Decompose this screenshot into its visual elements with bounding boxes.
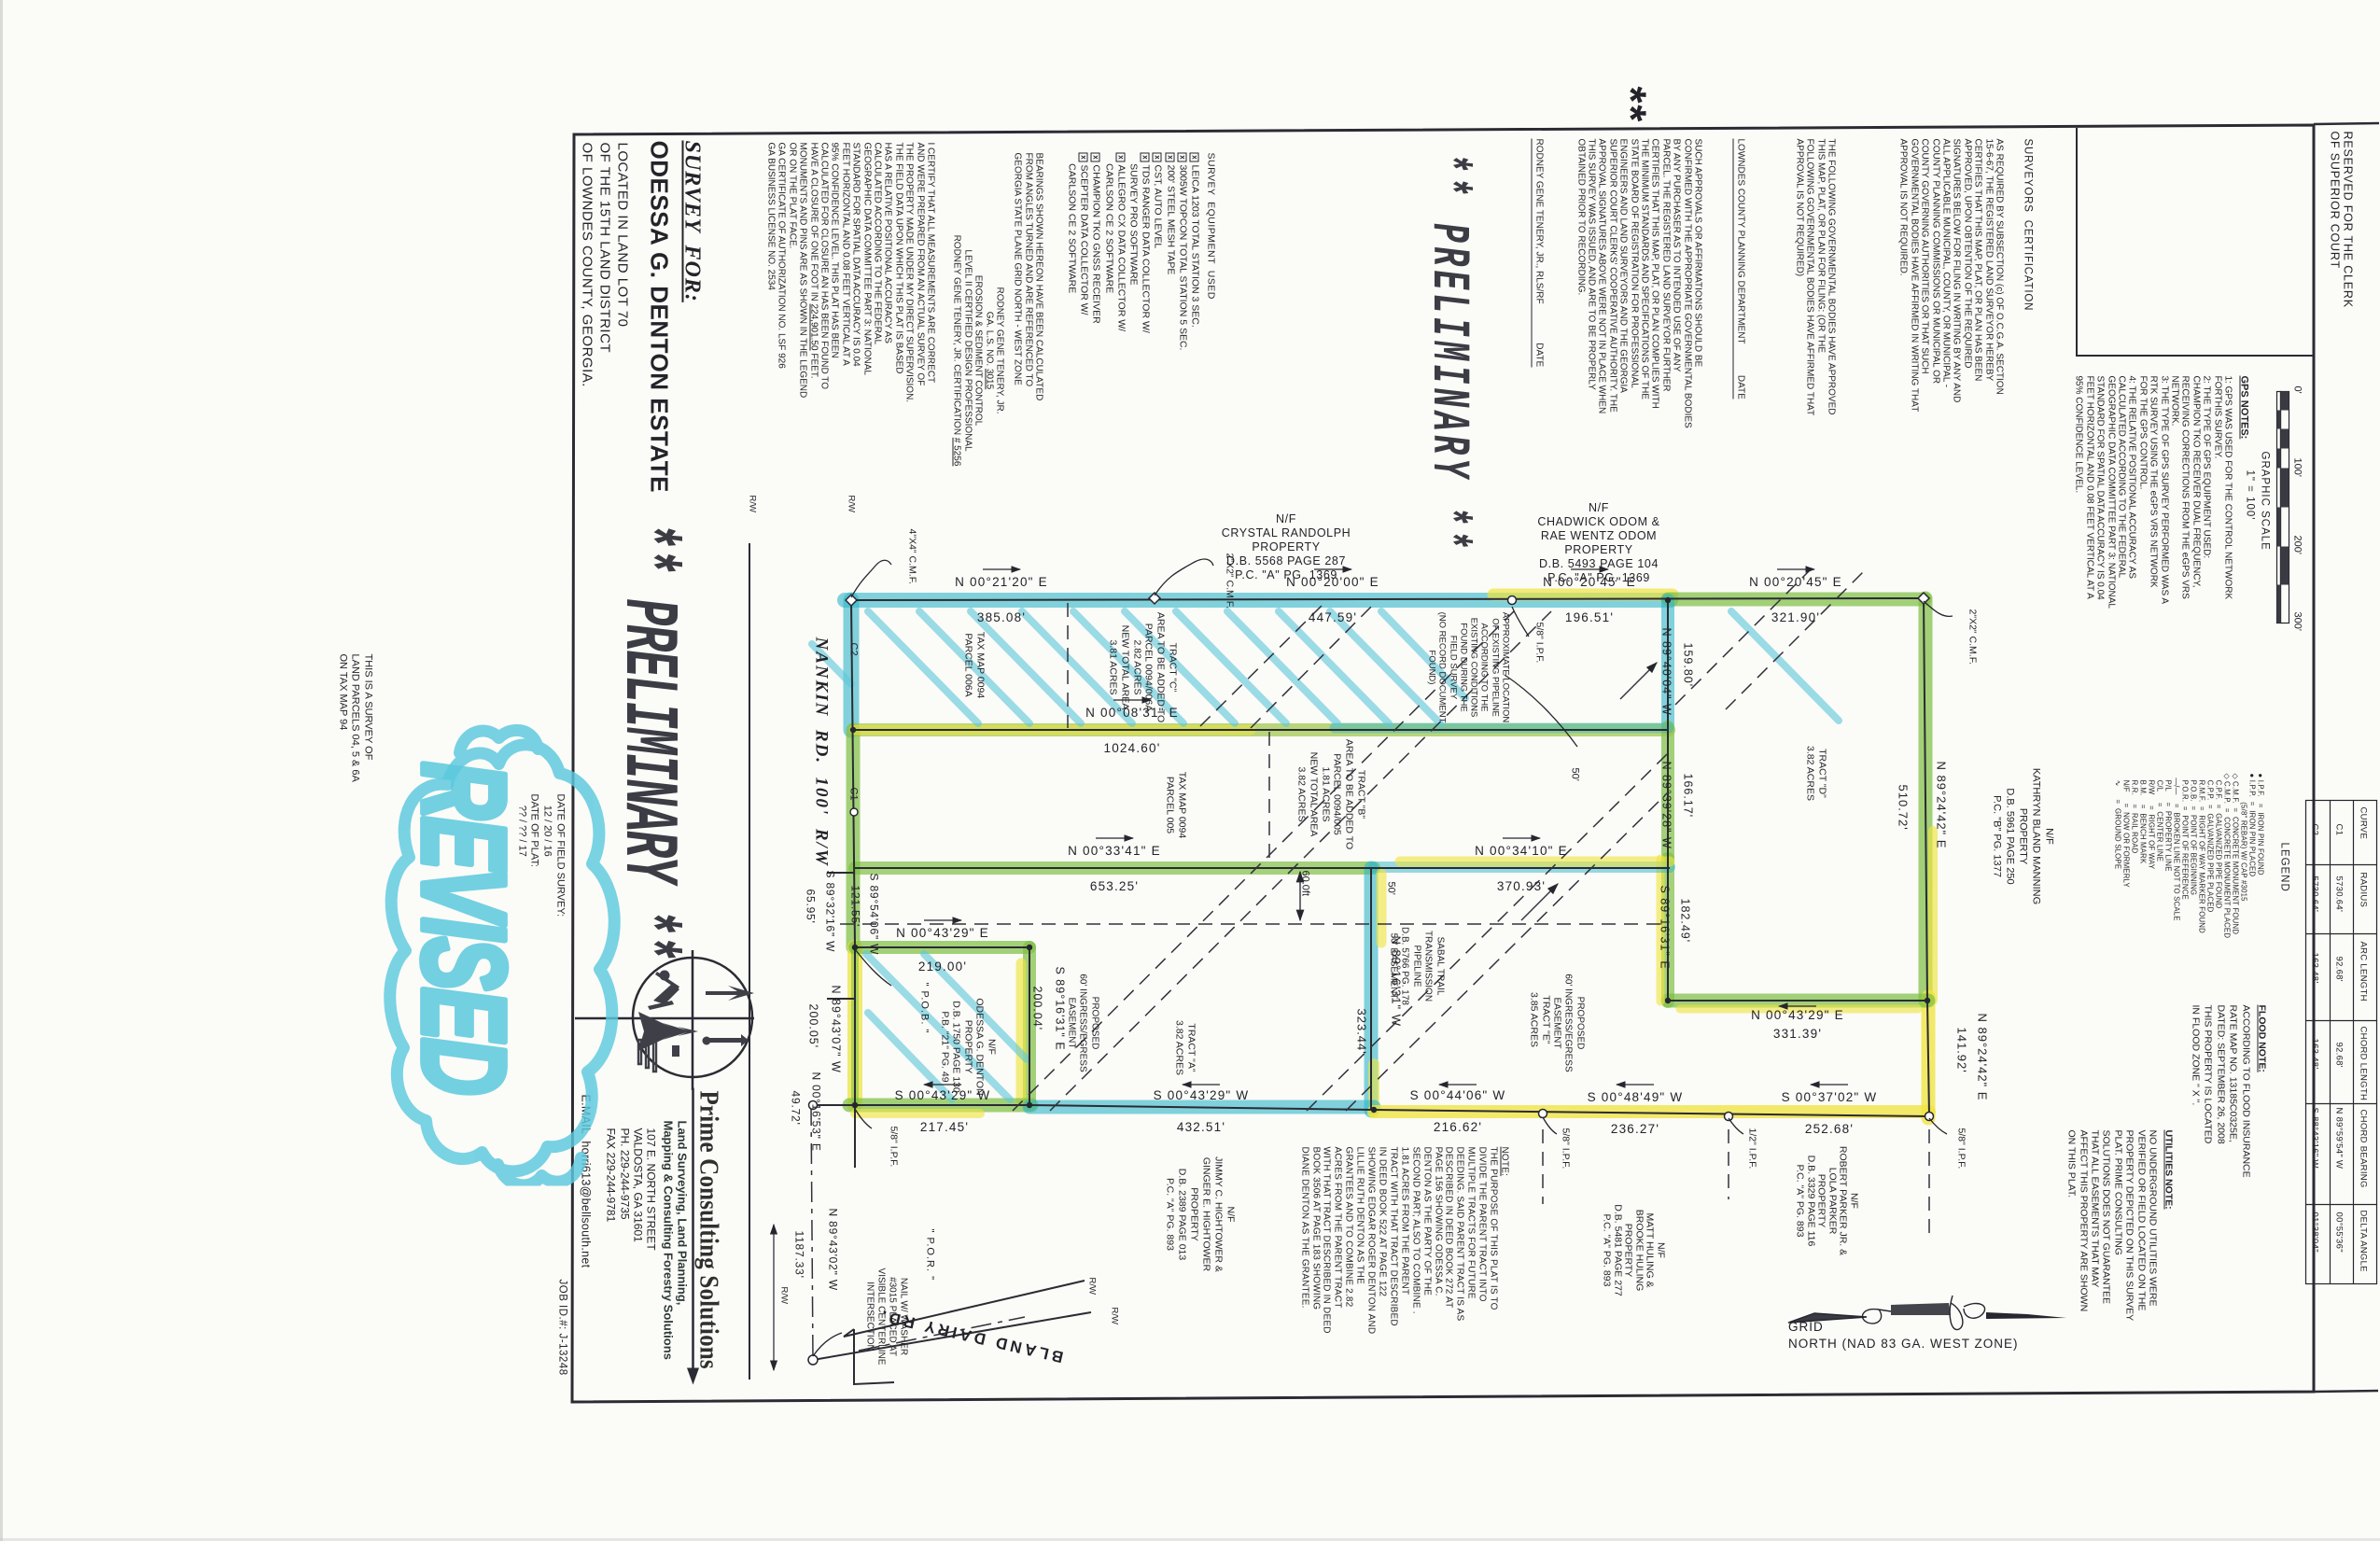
svg-text:01°38'04": 01°38'04" <box>2309 1212 2319 1252</box>
svg-text:300': 300' <box>2291 611 2303 630</box>
svg-text:163.48': 163.48' <box>2309 1038 2319 1069</box>
svg-text:ARC LENGTH: ARC LENGTH <box>2358 941 2368 1001</box>
svg-text:CHORD BEARING: CHORD BEARING <box>2358 1109 2368 1187</box>
svg-text:C1: C1 <box>2333 823 2344 835</box>
svg-text:RADIUS: RADIUS <box>2358 872 2368 907</box>
svg-text:REVISED: REVISED <box>398 761 530 1093</box>
svg-text:DELTA ANGLE: DELTA ANGLE <box>2358 1210 2368 1271</box>
svg-text:100': 100' <box>2291 457 2303 476</box>
svg-text:163.48': 163.48' <box>2309 952 2319 983</box>
svg-text:CURVE: CURVE <box>2358 806 2368 839</box>
svg-text:GRAPHIC SCALE: GRAPHIC SCALE <box>2259 451 2270 550</box>
svg-text:200': 200' <box>2291 535 2303 553</box>
svg-text:1" = 100': 1" = 100' <box>2244 469 2255 520</box>
svg-text:0': 0' <box>2291 385 2303 393</box>
svg-text:CHORD LENGTH: CHORD LENGTH <box>2358 1026 2368 1100</box>
svg-text:00°55'36": 00°55'36" <box>2333 1212 2344 1252</box>
svg-text:N 89°59'54" W: N 89°59'54" W <box>2333 1107 2344 1169</box>
svg-text:92.68': 92.68' <box>2333 1042 2344 1067</box>
svg-text:92.68': 92.68' <box>2333 956 2344 981</box>
svg-text:S 88°43'16" W: S 88°43'16" W <box>2309 1107 2319 1168</box>
svg-text:5730.64': 5730.64' <box>2333 876 2344 912</box>
svg-text:C2: C2 <box>2309 823 2319 835</box>
svg-text:5730.64': 5730.64' <box>2309 876 2319 912</box>
